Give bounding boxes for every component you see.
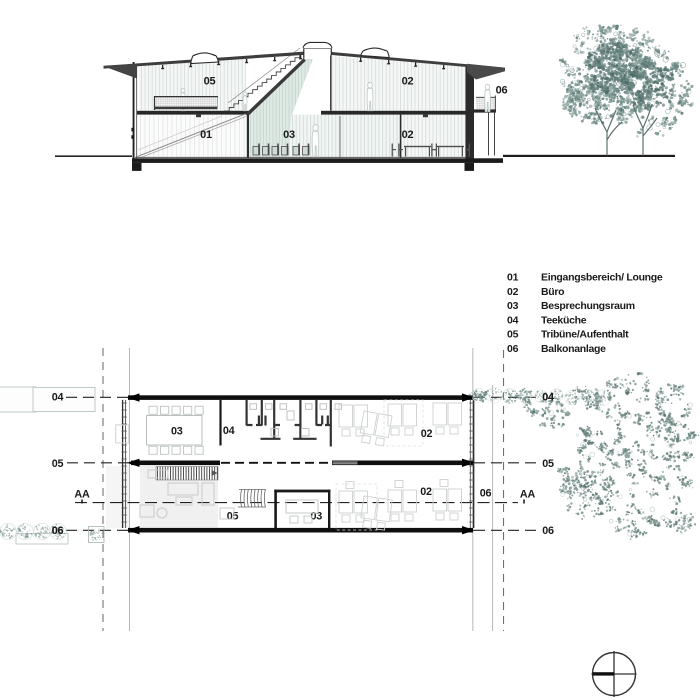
svg-text:02: 02 — [420, 486, 432, 498]
svg-text:Besprechungsraum: Besprechungsraum — [541, 300, 635, 312]
svg-text:03: 03 — [507, 300, 519, 312]
svg-text:06: 06 — [480, 488, 492, 500]
svg-text:Büro: Büro — [541, 286, 564, 298]
svg-text:02: 02 — [421, 428, 433, 440]
svg-text:Eingangsbereich/ Lounge: Eingangsbereich/ Lounge — [541, 272, 663, 284]
svg-text:Balkonanlage: Balkonanlage — [541, 343, 606, 355]
svg-text:Tribüne/Aufenthalt: Tribüne/Aufenthalt — [541, 329, 629, 341]
svg-text:04: 04 — [507, 314, 519, 326]
svg-text:04: 04 — [52, 391, 64, 403]
svg-text:05: 05 — [542, 458, 554, 470]
svg-text:06: 06 — [496, 85, 508, 97]
svg-text:01: 01 — [507, 272, 519, 284]
svg-text:05: 05 — [507, 329, 519, 341]
svg-text:Teeküche: Teeküche — [541, 314, 587, 326]
svg-text:02: 02 — [402, 129, 414, 141]
svg-text:02: 02 — [507, 286, 519, 298]
svg-text:AA: AA — [520, 489, 536, 501]
svg-text:04: 04 — [223, 425, 235, 437]
svg-text:01: 01 — [200, 129, 212, 141]
svg-text:05: 05 — [227, 511, 239, 523]
svg-text:03: 03 — [171, 425, 183, 437]
svg-text:03: 03 — [283, 129, 295, 141]
svg-text:AA: AA — [74, 488, 90, 500]
svg-text:05: 05 — [204, 76, 216, 88]
svg-text:05: 05 — [52, 458, 64, 470]
svg-text:02: 02 — [402, 76, 414, 88]
svg-text:06: 06 — [542, 525, 554, 537]
svg-text:06: 06 — [507, 343, 519, 355]
